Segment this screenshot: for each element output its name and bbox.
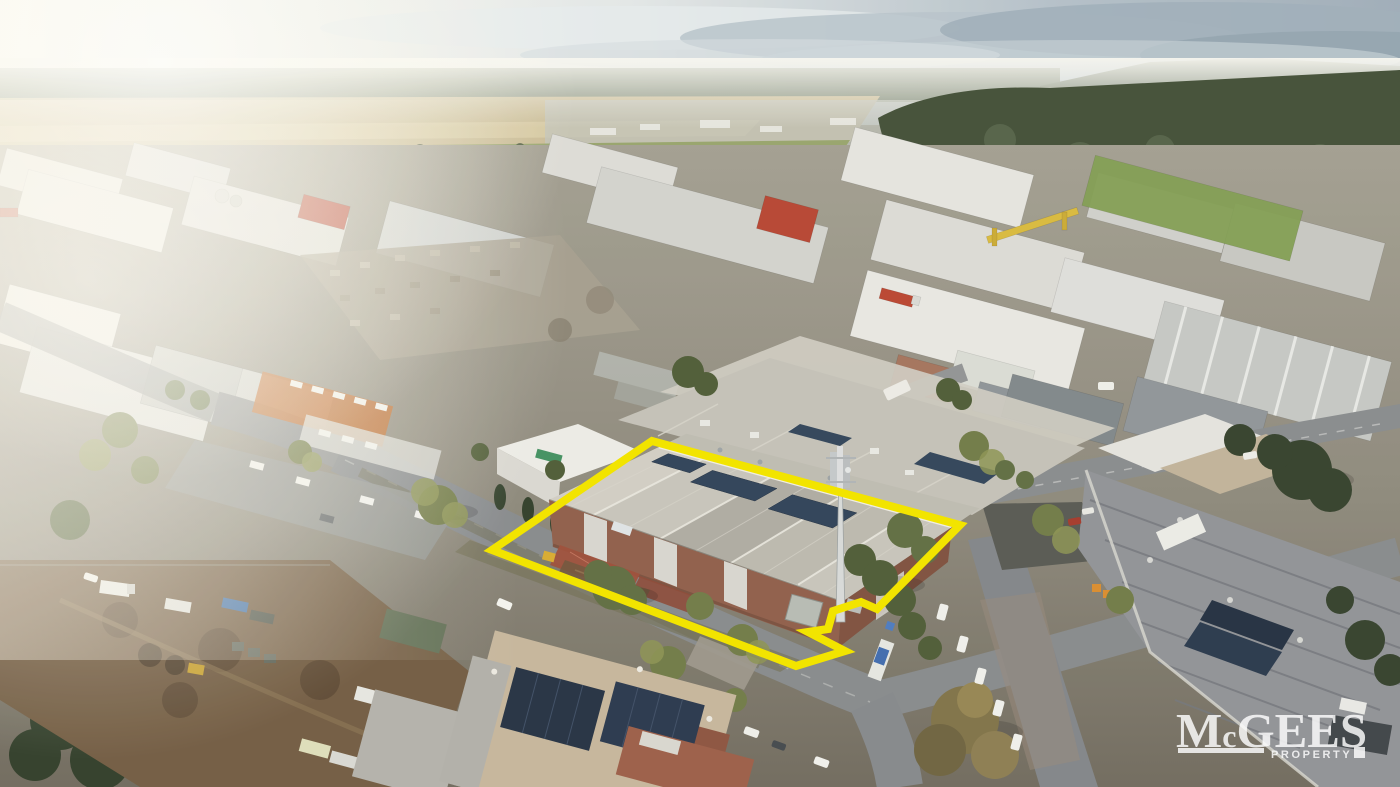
mcgees-logo: McGEES PROPERTY [1176, 703, 1367, 761]
sun-glare [0, 0, 1400, 787]
aerial-photo-svg: McGEES PROPERTY [0, 0, 1400, 787]
logo-rule [1178, 748, 1264, 753]
aerial-photo: McGEES PROPERTY [0, 0, 1400, 787]
logo-square [1354, 747, 1365, 758]
logo-tagline: PROPERTY [1271, 749, 1352, 761]
